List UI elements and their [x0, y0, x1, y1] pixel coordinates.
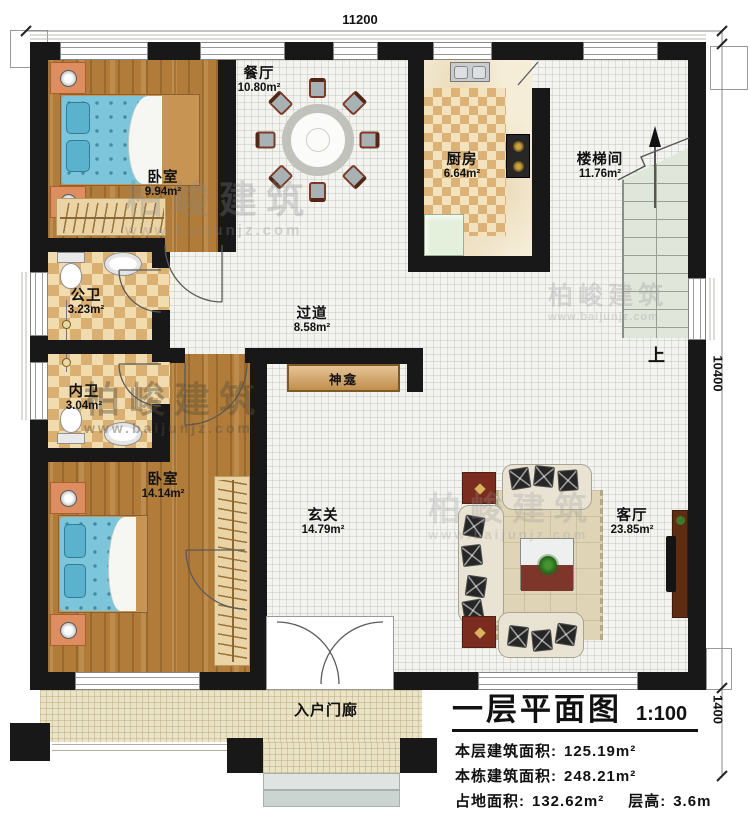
room-name: 入户门廊 [256, 703, 396, 720]
room-area: 3.23m² [41, 304, 131, 317]
room-name: 玄关 [278, 508, 368, 524]
room-label-bath-private: 内卫 3.04m² [39, 384, 129, 413]
room-label-dining: 餐厅 10.80m² [214, 66, 304, 95]
room-name: 客厅 [587, 508, 677, 524]
drawing-scale: 1:100 [636, 703, 687, 725]
shrine-label: 神龛 [329, 369, 358, 388]
dimension-right-height: 10400 [711, 344, 726, 404]
room-area: 9.94m² [118, 186, 208, 199]
room-area: 14.79m² [278, 524, 368, 537]
room-name: 厨房 [417, 152, 507, 168]
door-arc [185, 363, 247, 425]
up-text: 上 [643, 346, 671, 365]
room-label-living: 客厅 23.85m² [587, 508, 677, 537]
room-name: 卧室 [118, 170, 208, 186]
stat-label: 本栋建筑面积: [455, 768, 557, 785]
door-arc [165, 245, 222, 302]
stat-building-area: 本栋建筑面积:248.21m² [455, 765, 636, 786]
room-area: 6.64m² [417, 168, 507, 181]
room-area: 3.04m² [39, 400, 129, 413]
kitchen-door-leaf [518, 62, 538, 85]
stat-value: 125.19m² [564, 743, 636, 760]
stat-value: 132.62m² [532, 793, 604, 810]
door-arc [186, 550, 245, 609]
room-area: 14.14m² [118, 488, 208, 501]
room-name: 过道 [267, 306, 357, 322]
stat-label: 层高: [628, 793, 666, 810]
floor-plan-page: 神龛 [0, 0, 750, 828]
dimension-porch-depth: 1400 [711, 680, 726, 740]
page-title: 一层平面图 [452, 692, 622, 727]
room-area: 11.76m² [550, 168, 650, 181]
room-label-corridor: 过道 8.58m² [267, 306, 357, 335]
stat-label: 占地面积: [455, 793, 525, 810]
room-name: 餐厅 [214, 66, 304, 82]
title-underline [452, 729, 698, 732]
stat-label: 本层建筑面积: [455, 743, 557, 760]
room-name: 楼梯间 [550, 152, 650, 168]
stair-arrow-head [649, 126, 661, 147]
stairs-up-label: 上 [643, 346, 671, 365]
dimension-top-width: 11200 [320, 12, 400, 27]
room-label-bath-public: 公卫 3.23m² [41, 288, 131, 317]
stat-footprint-and-height: 占地面积:132.62m²层高:3.6m [455, 790, 711, 811]
stat-floor-area: 本层建筑面积:125.19m² [455, 740, 636, 761]
room-name: 内卫 [39, 384, 129, 400]
stat-value: 3.6m [673, 793, 711, 810]
room-label-foyer: 玄关 14.79m² [278, 508, 368, 537]
room-name: 卧室 [118, 472, 208, 488]
title-block: 一层平面图1:100 [452, 684, 687, 729]
room-label-bedroom-top: 卧室 9.94m² [118, 170, 208, 199]
room-area: 10.80m² [214, 82, 304, 95]
room-area: 8.58m² [267, 322, 357, 335]
room-label-stairwell: 楼梯间 11.76m² [550, 152, 650, 181]
stat-value: 248.21m² [564, 768, 636, 785]
room-label-porch: 入户门廊 [256, 703, 396, 720]
room-label-kitchen: 厨房 6.64m² [417, 152, 507, 181]
room-name: 公卫 [41, 288, 131, 304]
shrine-cabinet: 神龛 [287, 364, 400, 392]
room-area: 23.85m² [587, 524, 677, 537]
room-label-bedroom-bottom: 卧室 14.14m² [118, 472, 208, 501]
